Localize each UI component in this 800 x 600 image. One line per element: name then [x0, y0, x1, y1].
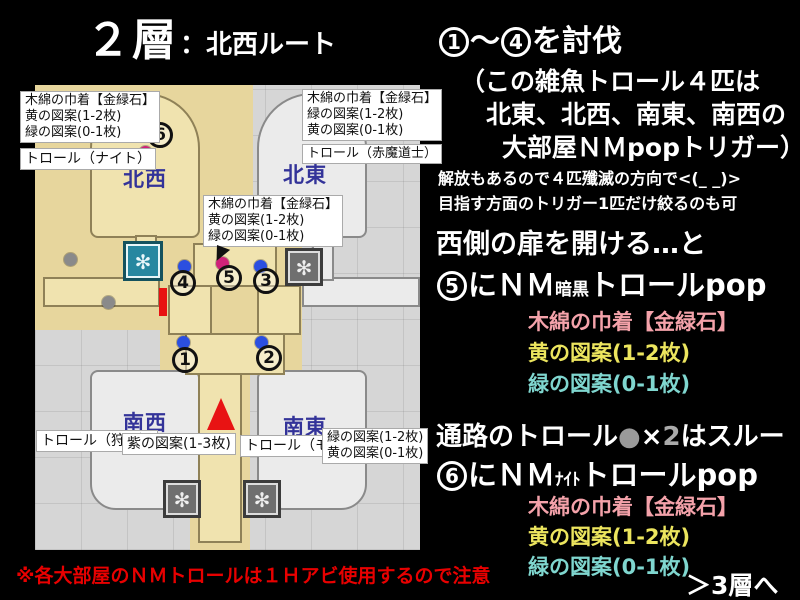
- circled-number-6: 6: [437, 461, 467, 491]
- pattern-label-sw: 紫の図案(1-3枚): [122, 433, 236, 455]
- drop-box-se: 緑の図案(1-2枚) 黄の図案(0-1枚): [322, 428, 428, 464]
- drop-line: 緑の図案(1-2枚): [327, 430, 423, 446]
- passage-troll-dot: [102, 296, 115, 309]
- drop-box-center: 木綿の巾着【金緑石】 黄の図案(1-2枚) 緑の図案(0-1枚): [203, 195, 343, 247]
- drop5-bag: 木綿の巾着【金緑石】: [528, 306, 738, 336]
- drop5-green: 緑の図案(0-1枚): [528, 368, 690, 398]
- note-line: 北東、北西、南東、南西の: [486, 95, 786, 131]
- entrance-arrow-icon: [207, 398, 235, 430]
- page-title-floor: ２層: [86, 4, 178, 68]
- drop5-yellow: 黄の図案(1-2枚): [528, 337, 690, 367]
- mosaic-tile-icon: [285, 248, 323, 286]
- circled-number-5: 5: [437, 271, 467, 301]
- heading-text: にＮＭ: [468, 458, 555, 492]
- heading-text: ×: [641, 422, 663, 452]
- heading-text: 通路のトロール: [436, 422, 618, 452]
- heading-text: トロールpop: [589, 268, 766, 302]
- heading-text: ～: [470, 24, 500, 59]
- troll-label-ne: トロール（赤魔道士）: [302, 144, 442, 164]
- warning-text: ※各大部屋のＮＭトロールは１Ｈアビ使用するので注意: [16, 561, 490, 588]
- drop-line: 緑の図案(1-2枚): [307, 107, 437, 123]
- heading-nm5-pop: 5にＮＭ暗黒トロールpop: [436, 262, 766, 304]
- west-door-marker: [159, 288, 167, 316]
- drop-line: 黄の図案(0-1枚): [307, 123, 437, 139]
- heading-nm6-pop: 6にＮＭﾅｲﾄトロールpop: [436, 452, 758, 494]
- drop-line: 木綿の巾着【金緑石】: [307, 91, 437, 107]
- drop-line: 黄の図案(0-1枚): [327, 446, 423, 462]
- teleporter-tile-icon: [123, 241, 163, 281]
- heading-text: はスルー: [681, 422, 785, 452]
- heading-defeat-1-4: 1～4を討伐: [438, 16, 622, 60]
- drop6-yellow: 黄の図案(1-2枚): [528, 521, 690, 551]
- note-line: 大部屋ＮＭpopトリガー）: [502, 128, 800, 164]
- troll-label-nw: トロール（ナイト）: [20, 148, 156, 170]
- drop-line: 黄の図案(1-2枚): [208, 213, 338, 229]
- page-title-route: ：北西ルート: [180, 24, 336, 61]
- map-marker-5: 5: [216, 265, 242, 291]
- drop-box-ne: 木綿の巾着【金緑石】 緑の図案(1-2枚) 黄の図案(0-1枚): [302, 89, 442, 141]
- circled-number-1: 1: [439, 27, 469, 57]
- heading-text: トロールpop: [581, 458, 758, 492]
- drop-line: 木綿の巾着【金緑石】: [208, 197, 338, 213]
- heading-count: 2: [663, 422, 681, 452]
- note-small-line: 解放もあるので４匹殲滅の方向で<(_ _)>: [438, 165, 741, 189]
- gray-troll-dot-glyph: ●: [618, 422, 641, 452]
- mosaic-tile-icon: [163, 480, 201, 518]
- drop-line: 黄の図案(1-2枚): [25, 109, 155, 125]
- heading-text: にＮＭ: [468, 268, 555, 302]
- map-marker-3: 3: [253, 268, 279, 294]
- passage-troll-dot: [64, 253, 77, 266]
- circled-number-4: 4: [501, 27, 531, 57]
- mosaic-tile-icon: [243, 480, 281, 518]
- note-line: （この雑魚トロール４匹は: [460, 62, 760, 98]
- drop-line: 緑の図案(0-1枚): [25, 125, 155, 141]
- next-floor-link: ＞3層へ: [686, 566, 778, 600]
- map-marker-2: 2: [256, 345, 282, 371]
- map-marker-4: 4: [170, 270, 196, 296]
- heading-passage-skip: 通路のトロール●×2はスルー: [436, 416, 785, 453]
- heading-small-text: ﾅｲﾄ: [555, 470, 581, 490]
- note-small-line: 目指す方面のトリガー1匹だけ絞るのも可: [438, 190, 737, 214]
- drop-line: 木綿の巾着【金緑石】: [25, 93, 155, 109]
- drop6-green: 緑の図案(0-1枚): [528, 551, 690, 581]
- heading-text: を討伐: [532, 24, 622, 59]
- drop-line: 緑の図案(0-1枚): [208, 229, 338, 245]
- heading-west-door: 西側の扉を開ける…と: [436, 222, 706, 261]
- heading-small-text: 暗黒: [555, 280, 589, 300]
- drop6-bag: 木綿の巾着【金緑石】: [528, 491, 738, 521]
- map-marker-1: 1: [172, 347, 198, 373]
- drop-box-nw: 木綿の巾着【金緑石】 黄の図案(1-2枚) 緑の図案(0-1枚): [20, 91, 160, 143]
